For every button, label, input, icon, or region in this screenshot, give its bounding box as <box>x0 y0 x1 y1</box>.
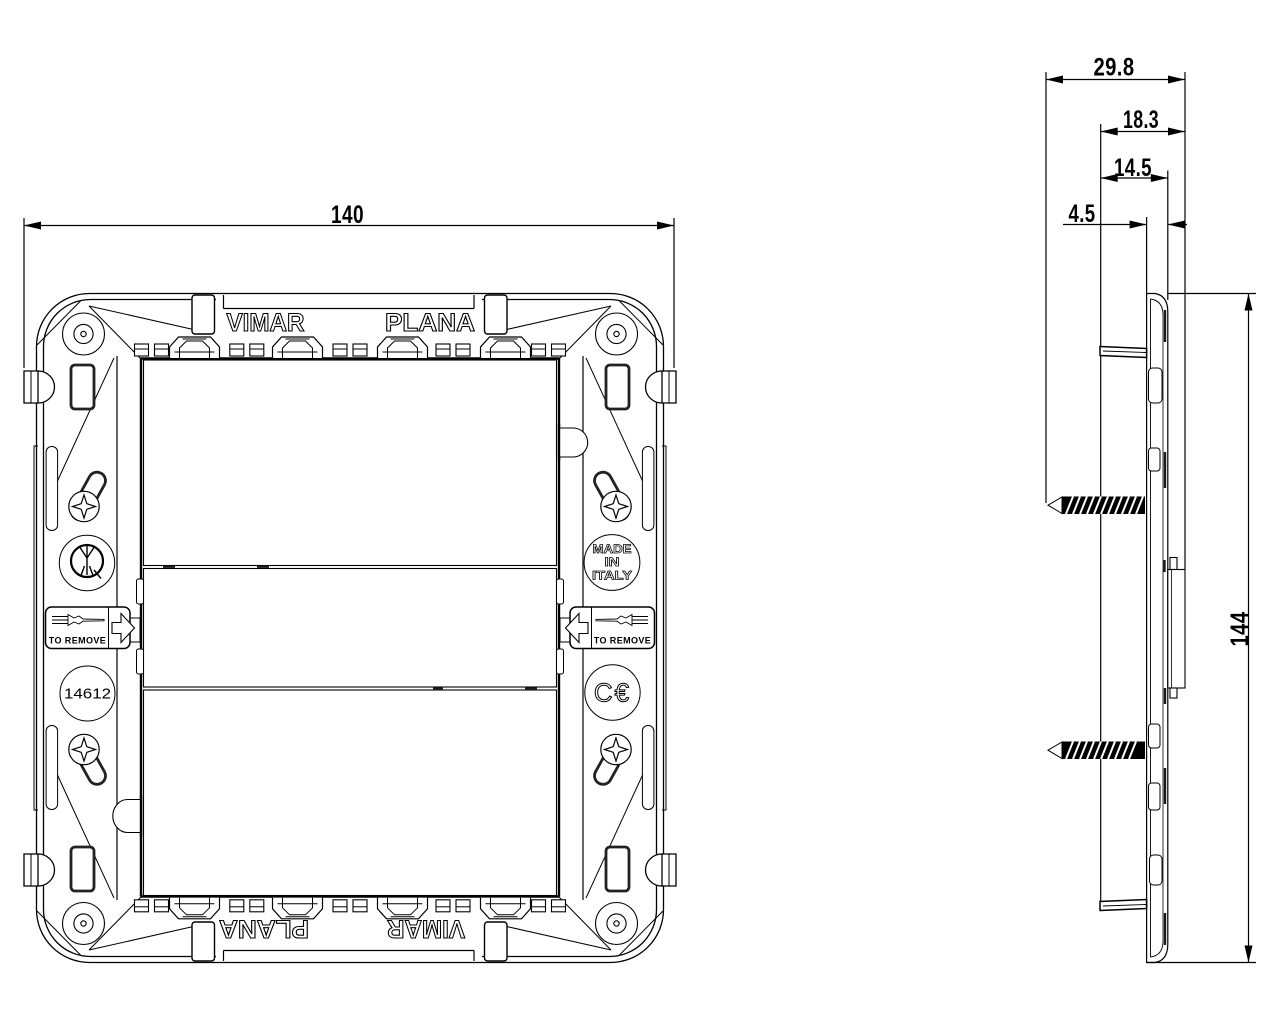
svg-text:29.8: 29.8 <box>1094 54 1135 82</box>
svg-text:4.5: 4.5 <box>1069 200 1096 228</box>
svg-text:144: 144 <box>1226 612 1254 647</box>
svg-text:PLANA: PLANA <box>219 915 309 943</box>
svg-text:IN: IN <box>605 555 620 569</box>
svg-text:ITALY: ITALY <box>592 569 632 583</box>
svg-text:14.5: 14.5 <box>1114 154 1152 182</box>
svg-text:VIMAR: VIMAR <box>387 915 465 943</box>
svg-text:14612: 14612 <box>64 686 111 703</box>
svg-text:MADE: MADE <box>593 542 632 556</box>
svg-text:TO REMOVE: TO REMOVE <box>49 636 106 646</box>
svg-text:C€: C€ <box>594 678 631 708</box>
svg-text:140: 140 <box>331 201 364 229</box>
svg-text:VIMAR: VIMAR <box>227 309 305 337</box>
svg-text:TO REMOVE: TO REMOVE <box>594 636 651 646</box>
svg-text:18.3: 18.3 <box>1123 106 1159 134</box>
svg-text:PLANA: PLANA <box>385 309 475 337</box>
